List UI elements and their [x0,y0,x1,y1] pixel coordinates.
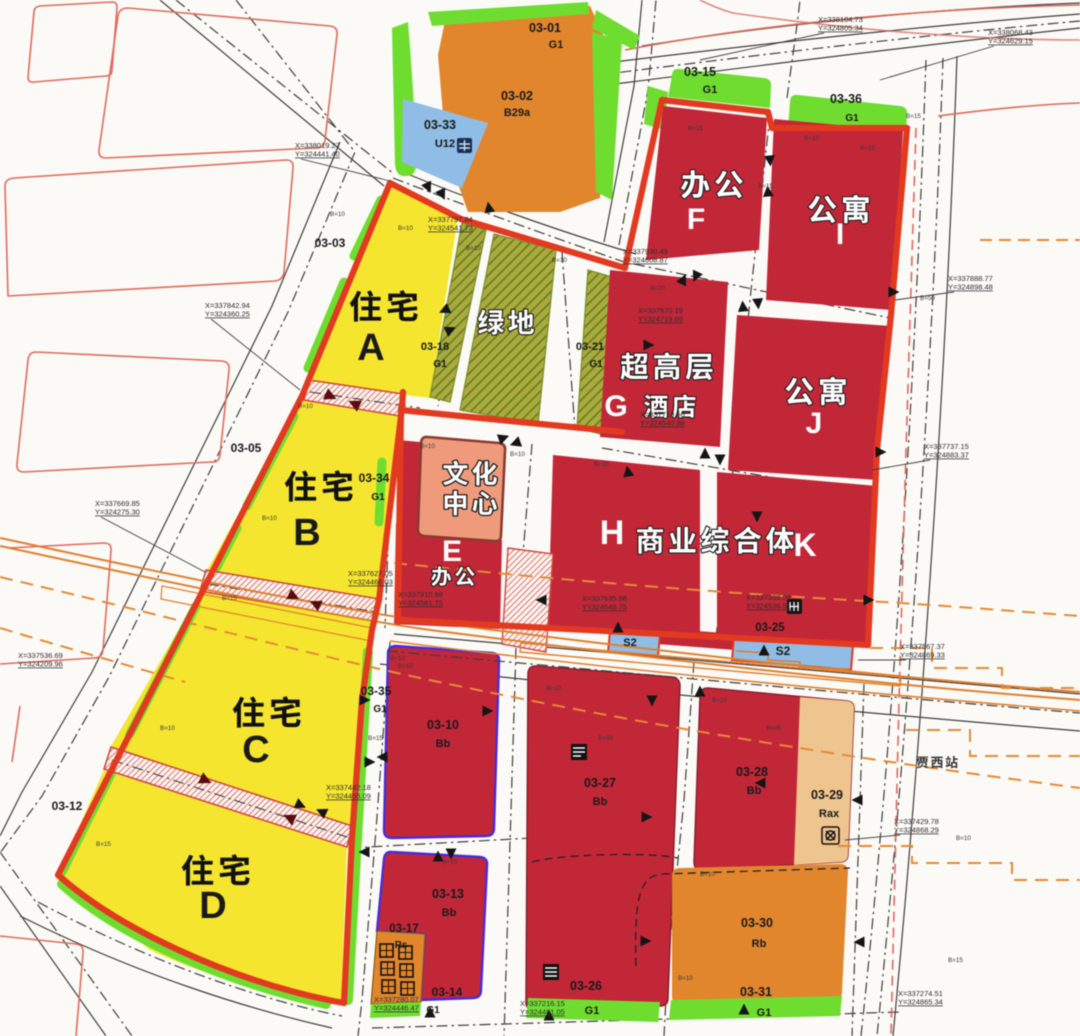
svg-text:C: C [242,729,269,771]
svg-text:I: I [836,218,844,251]
svg-text:E: E [442,535,462,568]
svg-text:B=10: B=10 [160,725,175,732]
svg-text:B29a: B29a [504,107,531,119]
svg-text:Bb: Bb [436,738,451,750]
svg-text:Bb: Bb [442,907,457,919]
svg-text:G1: G1 [585,1005,600,1017]
svg-text:U12: U12 [435,138,455,150]
svg-text:B=15: B=15 [688,125,703,132]
svg-text:03-30: 03-30 [741,916,773,930]
svg-text:03-15: 03-15 [684,65,716,79]
svg-text:03-03: 03-03 [315,236,346,250]
svg-text:Y=324441.40: Y=324441.40 [295,150,340,159]
svg-text:Rs: Rs [395,940,408,951]
svg-text:B=10: B=10 [390,655,405,662]
svg-text:B=15: B=15 [222,595,237,602]
svg-text:Y=324561.75: Y=324561.75 [398,599,443,608]
svg-text:J: J [806,407,823,440]
svg-text:B=15: B=15 [860,145,875,152]
svg-text:G1: G1 [845,113,859,124]
svg-text:B=15: B=15 [96,841,111,848]
svg-text:03-21: 03-21 [576,341,604,353]
svg-text:Y=324360.25: Y=324360.25 [205,310,250,319]
svg-text:A: A [357,327,384,369]
svg-text:B=15: B=15 [948,957,963,964]
svg-text:03-26: 03-26 [570,979,602,993]
svg-text:Y=324805.34: Y=324805.34 [818,24,863,33]
svg-text:H: H [600,514,625,552]
svg-text:S2: S2 [776,644,791,658]
svg-text:B=10: B=10 [594,461,609,468]
svg-text:B=10: B=10 [442,859,457,866]
svg-text:B=10: B=10 [420,443,435,450]
svg-text:S2: S2 [623,637,636,649]
svg-text:B=10: B=10 [330,211,345,218]
svg-text:Y=324275.30: Y=324275.30 [95,508,140,517]
svg-text:F: F [687,203,705,236]
svg-text:B=15: B=15 [368,735,383,742]
svg-text:Y=324446.47: Y=324446.47 [374,1004,419,1013]
svg-text:03-33: 03-33 [424,118,456,132]
svg-text:03-18: 03-18 [421,341,449,353]
svg-text:Y=324540.88: Y=324540.88 [640,419,685,428]
svg-text:B=10: B=10 [546,685,561,692]
svg-text:Y=324540.75: Y=324540.75 [582,603,627,612]
svg-text:B=50: B=50 [920,295,935,302]
svg-text:Y=324608.87: Y=324608.87 [623,256,668,265]
svg-text:G: G [604,390,627,423]
svg-text:Y=324719.69: Y=324719.69 [638,315,683,324]
svg-text:Y=324868.29: Y=324868.29 [894,826,939,835]
svg-text:G1: G1 [426,1005,440,1016]
svg-text:03-17: 03-17 [389,923,418,935]
svg-text:B=10: B=10 [262,515,277,522]
svg-text:Bb: Bb [747,785,762,797]
svg-text:G1: G1 [757,1007,772,1019]
svg-text:B=10: B=10 [398,225,413,232]
svg-text:Y=324865.34: Y=324865.34 [898,998,943,1007]
svg-text:03-36: 03-36 [830,92,862,106]
svg-text:Y=324536.51: Y=324536.51 [746,602,791,611]
svg-text:03-02: 03-02 [501,89,533,103]
svg-text:D: D [199,885,226,927]
svg-text:G1: G1 [703,84,718,96]
svg-text:B=10: B=10 [398,663,413,670]
svg-text:B=10: B=10 [466,245,481,252]
svg-text:K: K [793,527,816,563]
svg-text:03-12: 03-12 [52,799,83,813]
svg-text:03-05: 03-05 [231,441,262,455]
svg-text:03-01: 03-01 [529,21,561,35]
svg-text:B=10: B=10 [956,835,971,842]
svg-text:B=10: B=10 [510,451,525,458]
svg-text:B=20: B=20 [650,285,665,292]
svg-text:B=10: B=10 [804,135,819,142]
svg-text:03-27: 03-27 [584,776,616,790]
svg-text:Y=324541.73: Y=324541.73 [428,224,473,233]
svg-text:Y=324455.09: Y=324455.09 [326,792,371,801]
svg-text:03-29: 03-29 [811,788,843,802]
svg-text:Y=324629.15: Y=324629.15 [988,37,1033,46]
svg-text:G1: G1 [589,359,603,370]
svg-text:03-13: 03-13 [432,887,464,901]
svg-text:Y=324869.33: Y=324869.33 [900,651,945,660]
svg-text:B=45: B=45 [766,725,781,732]
svg-text:B=45: B=45 [598,735,613,742]
svg-text:03-31: 03-31 [740,985,772,999]
svg-text:03-35: 03-35 [361,684,392,698]
svg-text:Y=324883.37: Y=324883.37 [924,451,969,460]
svg-text:B=15: B=15 [758,183,773,190]
svg-text:03-10: 03-10 [427,718,459,732]
svg-text:Rb: Rb [752,938,767,950]
svg-text:B=10: B=10 [678,975,693,982]
svg-text:Rax: Rax [819,808,840,820]
svg-text:B=15: B=15 [906,113,921,120]
svg-text:G1: G1 [433,359,447,370]
svg-text:B=10: B=10 [712,697,727,704]
svg-text:B=10: B=10 [298,403,313,410]
svg-text:Y=324481.05: Y=324481.05 [520,1008,565,1017]
svg-text:03-25: 03-25 [755,622,785,634]
svg-text:G1: G1 [549,39,564,51]
svg-text:03-14: 03-14 [432,985,463,999]
svg-text:Y=324898.48: Y=324898.48 [948,283,993,292]
svg-text:03-28: 03-28 [736,765,768,779]
svg-text:B=10: B=10 [552,257,567,264]
svg-text:03-34: 03-34 [359,471,390,485]
svg-text:Y=324466.03: Y=324466.03 [348,578,393,587]
svg-text:Bb: Bb [593,796,608,808]
svg-text:G1: G1 [371,492,385,503]
svg-text:Y=324209.96: Y=324209.96 [18,660,63,669]
svg-text:G1: G1 [373,704,387,715]
svg-text:B: B [293,512,320,554]
svg-text:B=10: B=10 [700,871,715,878]
